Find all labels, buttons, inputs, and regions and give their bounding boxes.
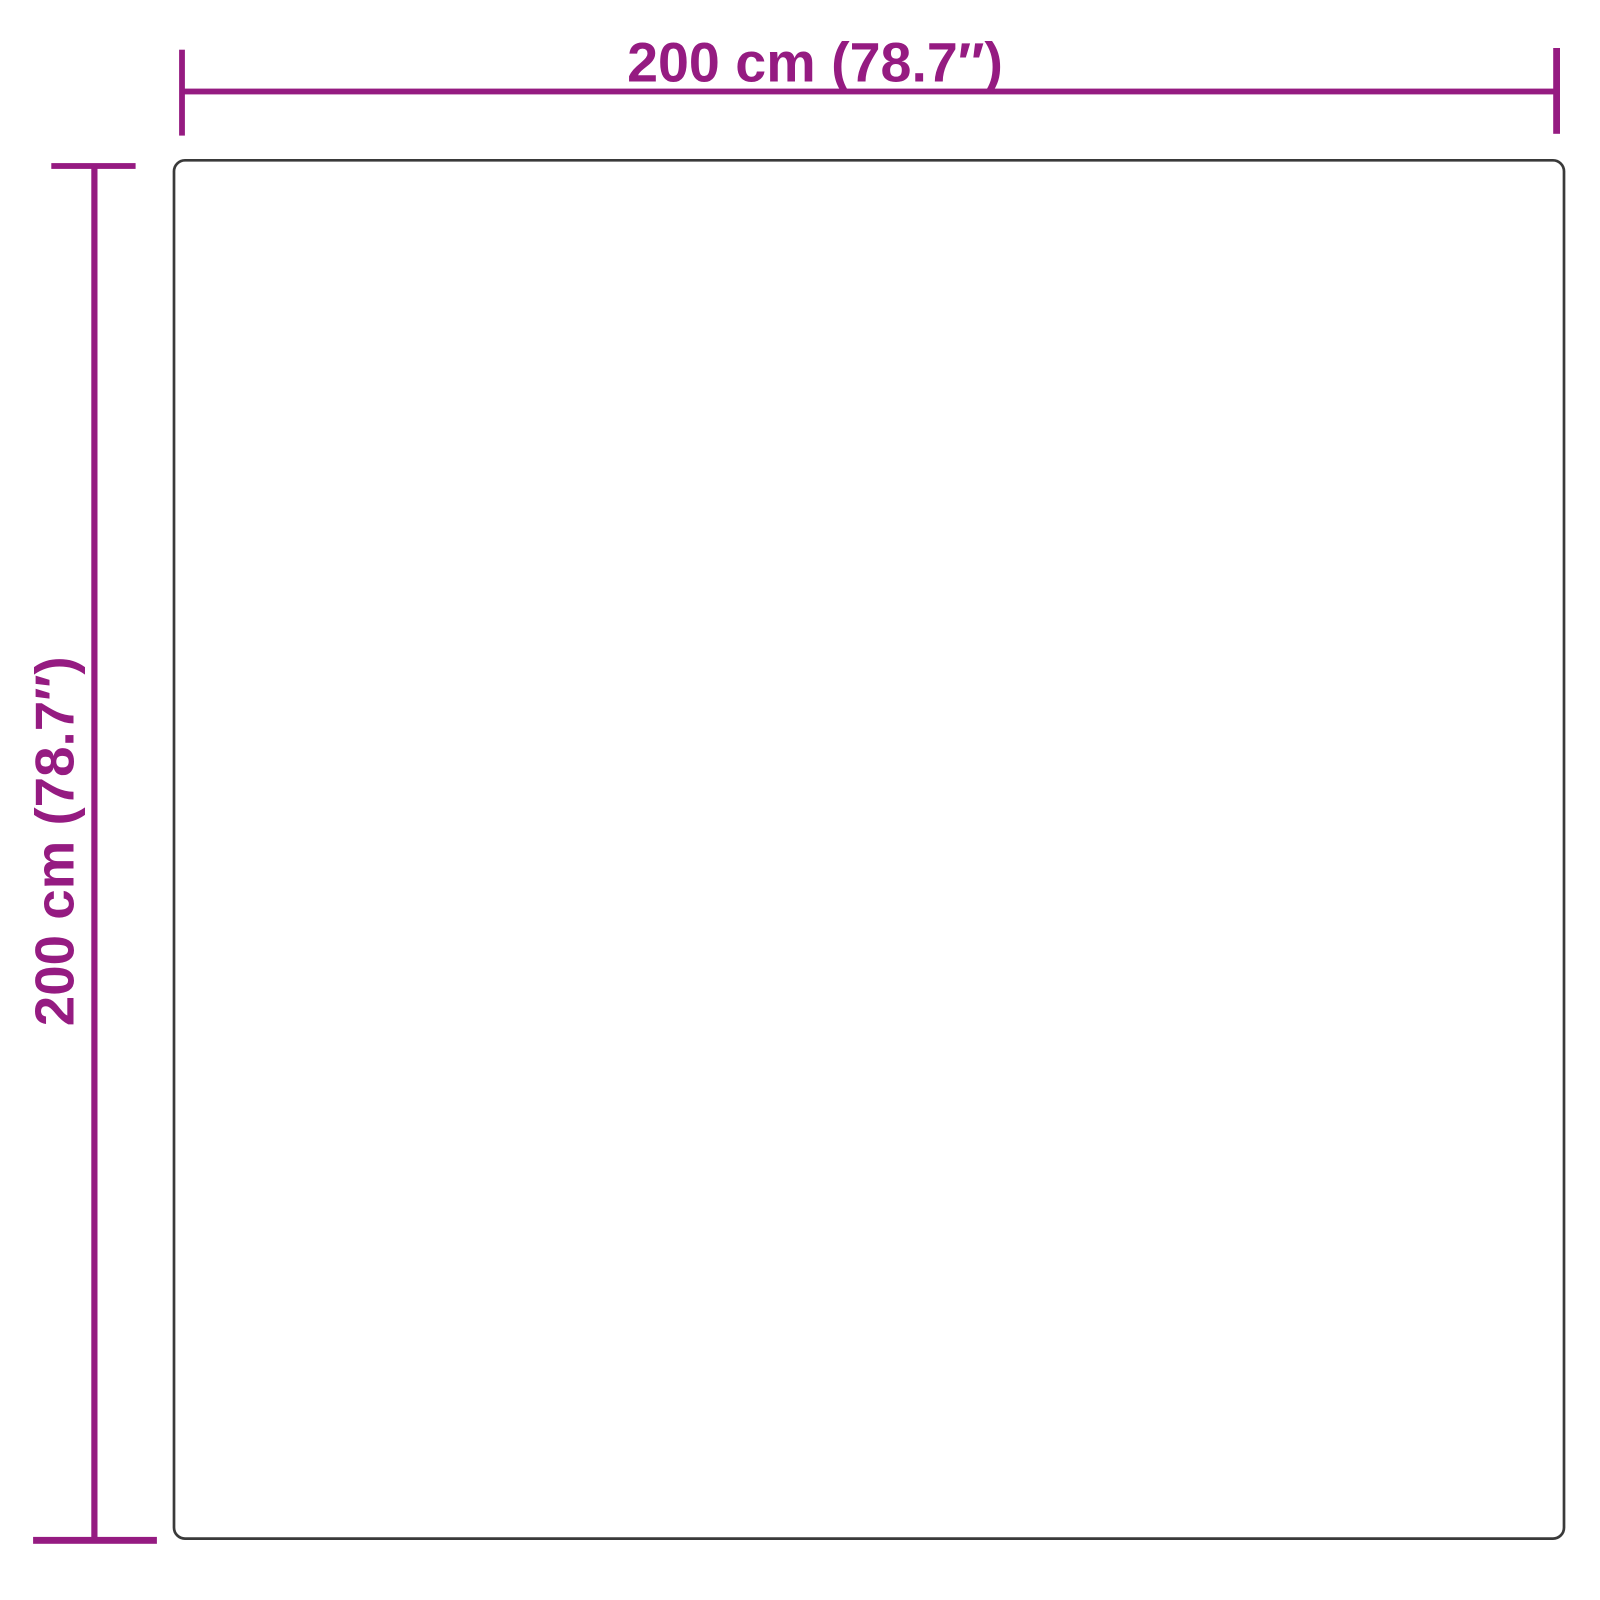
svg-text:200 cm (78.7″): 200 cm (78.7″) xyxy=(627,31,1003,93)
svg-text:200 cm (78.7″): 200 cm (78.7″) xyxy=(23,656,85,1026)
